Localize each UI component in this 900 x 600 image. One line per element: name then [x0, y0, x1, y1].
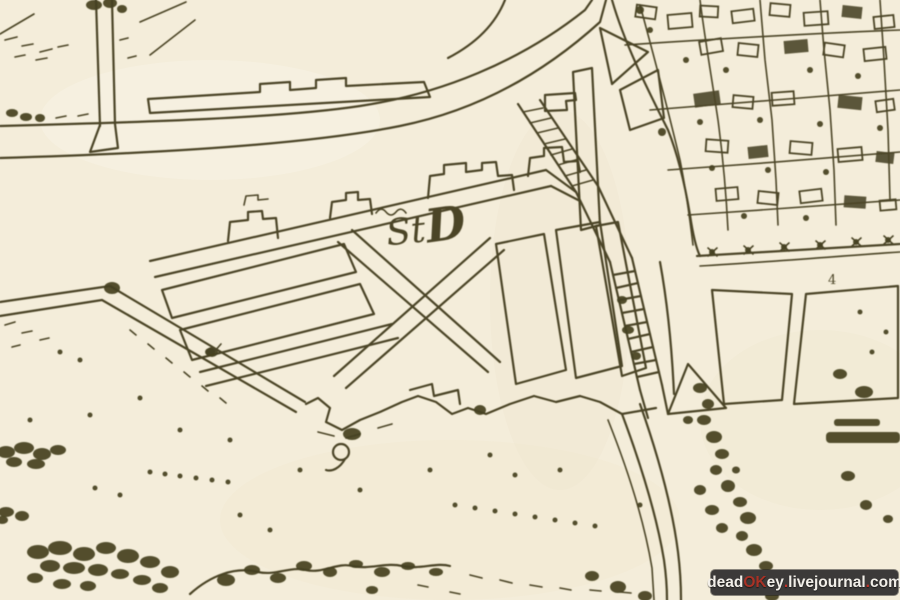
map-plot-number: 4 [828, 273, 836, 288]
watermark-text-part: livejournal [788, 574, 866, 592]
map-scan: 4 St D deadOKey.livejournal.com [0, 0, 900, 600]
vegetation-clusters-left [0, 442, 179, 593]
road-lower-left [0, 282, 305, 412]
historical-map-drawing: 4 St D [0, 0, 900, 600]
watermark-text-part: OK [743, 574, 766, 592]
watermark-text-part: com [870, 574, 900, 592]
map-script-label-small: St [384, 209, 428, 254]
watermark-text-part: dead [707, 574, 743, 592]
map-script-label-large: D [420, 194, 469, 253]
watermark-text-part: ey [767, 574, 784, 592]
paper-shading [40, 60, 900, 600]
suburb-long-blocks [162, 244, 398, 386]
watermark: deadOKey.livejournal.com [711, 570, 898, 595]
